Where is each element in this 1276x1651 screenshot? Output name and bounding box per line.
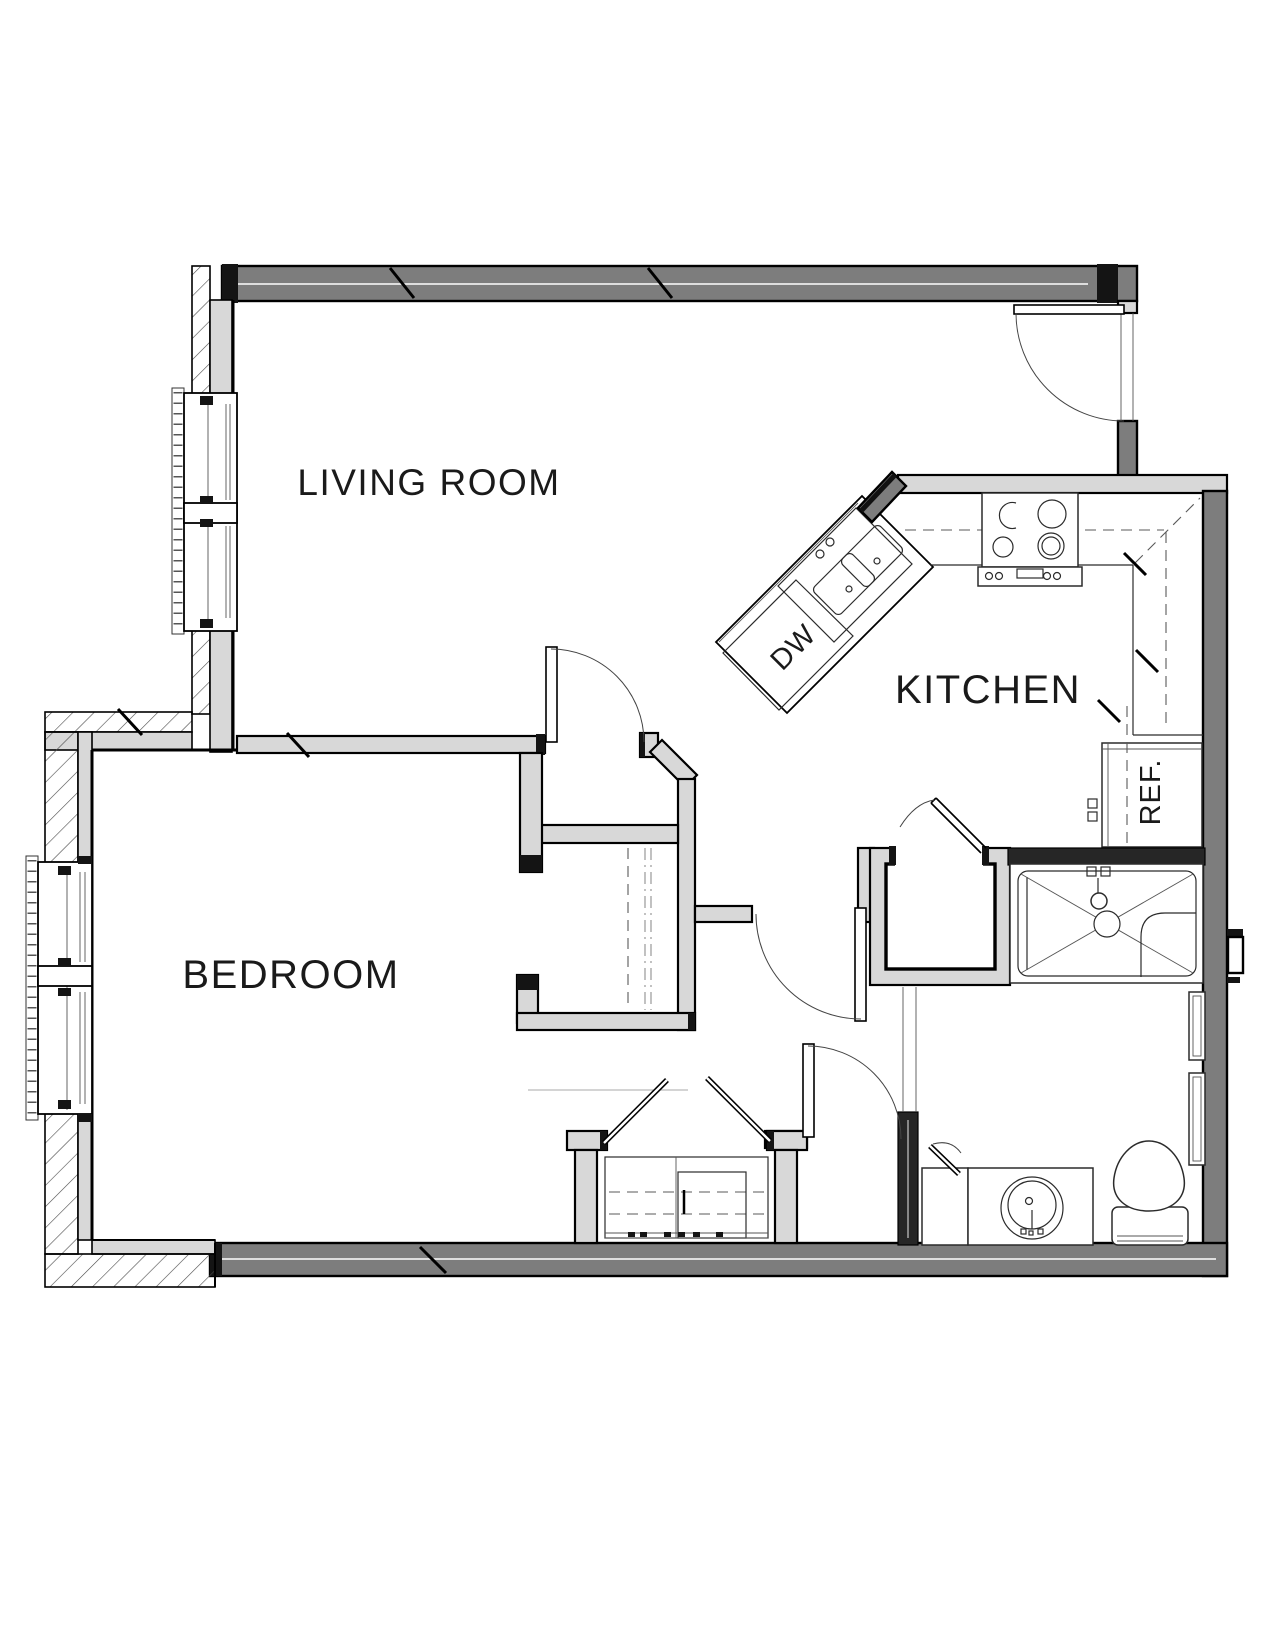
linen-niches: [1189, 992, 1205, 1165]
closet-double-doors: [604, 1078, 770, 1143]
exterior-wall-fixture: [1227, 929, 1243, 983]
utility-closet-door: [900, 798, 986, 853]
closet-unit: [678, 1172, 746, 1238]
kitchen-label: KITCHEN: [895, 668, 1081, 712]
kitchen-north-wall: [898, 475, 1227, 493]
exterior-walls: [210, 264, 1243, 1276]
floor-plan-page: LIVING ROOM KITCHEN BEDROOM DW REF.: [0, 0, 1276, 1651]
bedroom-closet-nook: [528, 848, 688, 1090]
bedroom-divider-wall: [237, 736, 545, 753]
window-mullion: [38, 966, 92, 986]
range-stove: [978, 493, 1082, 586]
refrigerator-label: REF.: [1135, 759, 1167, 826]
hall-door: [756, 908, 866, 1021]
angled-wall-stub: [858, 472, 906, 522]
living-room-window: [172, 388, 237, 634]
shower-drain: [1094, 911, 1120, 937]
bedroom-door: [546, 647, 644, 742]
floor-plan: LIVING ROOM KITCHEN BEDROOM DW REF.: [0, 0, 1276, 1651]
bottom-closet: [605, 1157, 768, 1238]
right-wall: [1203, 491, 1227, 1276]
living-room-label: LIVING ROOM: [297, 462, 560, 503]
toilet: [1112, 1141, 1188, 1245]
bathroom-fixtures: [922, 992, 1205, 1245]
entry-door: [1014, 305, 1133, 421]
bedroom-window: [26, 856, 92, 1122]
bedroom-label: BEDROOM: [182, 953, 399, 997]
bathroom-door: [803, 1044, 901, 1139]
vanity-sink: [922, 1168, 1093, 1245]
utility-closet: [870, 845, 1010, 985]
shower: [1010, 864, 1203, 983]
